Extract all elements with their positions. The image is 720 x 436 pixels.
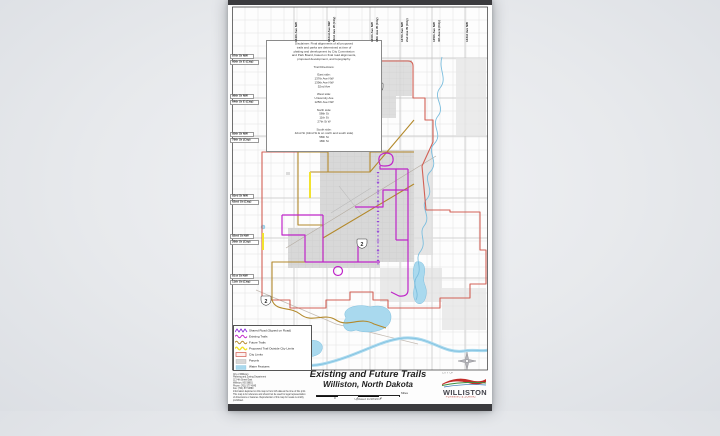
desktop-background: { "map": { "route_shield": "2", "colors"… <box>0 0 720 411</box>
top-road-label: 133rd Ave NW <box>466 22 469 42</box>
legend-item: Water Features <box>235 364 310 370</box>
top-road-label: 2nd Ave W (City) <box>406 18 409 42</box>
logo-swoosh-icon <box>440 374 488 388</box>
svg-text:2: 2 <box>361 242 364 248</box>
left-road-label: 83rd St NW <box>230 194 254 199</box>
city-limits-swatch-icon <box>235 352 248 357</box>
williston-logo: CITY OF WILLISTON PLANNING & ZONING <box>439 372 491 404</box>
scale-unit-label: Miles <box>401 392 408 395</box>
water-swatch-icon <box>235 365 248 370</box>
top-road-label: 52nd Ave W (City) <box>333 17 336 42</box>
top-road-label: 140th Ave NW <box>371 22 374 42</box>
left-road-label: 86th St NW <box>230 94 254 99</box>
title-block: Existing and Future Trails Williston, No… <box>288 370 448 393</box>
logo-department: PLANNING & ZONING <box>439 396 483 399</box>
north-arrow-icon <box>457 351 477 371</box>
disclaimer-text: Disclaimer: Final alignments of all prop… <box>267 41 381 144</box>
parcels-swatch-icon <box>235 359 248 364</box>
scale-tick-label: 2 <box>380 397 382 400</box>
left-road-label: 85th St NW <box>230 132 254 137</box>
left-road-label: 62nd St (City) <box>230 200 259 205</box>
legend: Shared Road (Signed on Road) Existing Tr… <box>233 325 312 371</box>
top-road-label: 137th Ave NW <box>401 22 404 42</box>
map-sheet: 2 2 2 144th Ave NW 142nd Ave NW 52nd Ave… <box>228 0 492 411</box>
existing-trail-swatch-icon <box>235 334 248 339</box>
left-road-label: 87th St NW <box>230 54 254 59</box>
left-road-label: 82nd St NW <box>230 234 254 239</box>
left-road-label: 11th St (City) <box>230 280 259 285</box>
highway-2-shield: 2 <box>357 239 367 248</box>
left-road-label: 78th St (City) <box>230 138 259 143</box>
shared-road-swatch-icon <box>235 328 248 333</box>
svg-text:2: 2 <box>265 299 268 305</box>
left-road-label: 64th St E (City) <box>230 100 259 105</box>
future-trail-swatch-icon <box>235 340 248 345</box>
scale-bar: 0 1 2 Miles <box>316 395 411 403</box>
top-road-label: 144th Ave NW <box>295 22 298 42</box>
scale-tick-label: 0 <box>334 397 336 400</box>
disclaimer-box: Disclaimer: Final alignments of all prop… <box>266 40 382 152</box>
left-road-label: 60th St E (City) <box>230 60 259 65</box>
map-subtitle: Williston, North Dakota <box>288 380 448 389</box>
top-road-label: 18th Ave W (City) <box>376 18 379 42</box>
map-title: Existing and Future Trails <box>288 370 448 380</box>
left-road-label: 81st St NW <box>230 274 254 279</box>
proposed-trail-swatch-icon <box>235 346 248 351</box>
top-road-label: 142nd Ave NW <box>328 21 331 42</box>
scale-tick-label: 1 <box>357 397 359 400</box>
top-road-label: 135th Ave NW <box>433 22 436 42</box>
highway-2-shield: 2 <box>261 296 271 305</box>
top-road-label: 4th Ave E (City) <box>438 20 441 42</box>
left-road-label: 26th St (City) <box>230 240 259 245</box>
